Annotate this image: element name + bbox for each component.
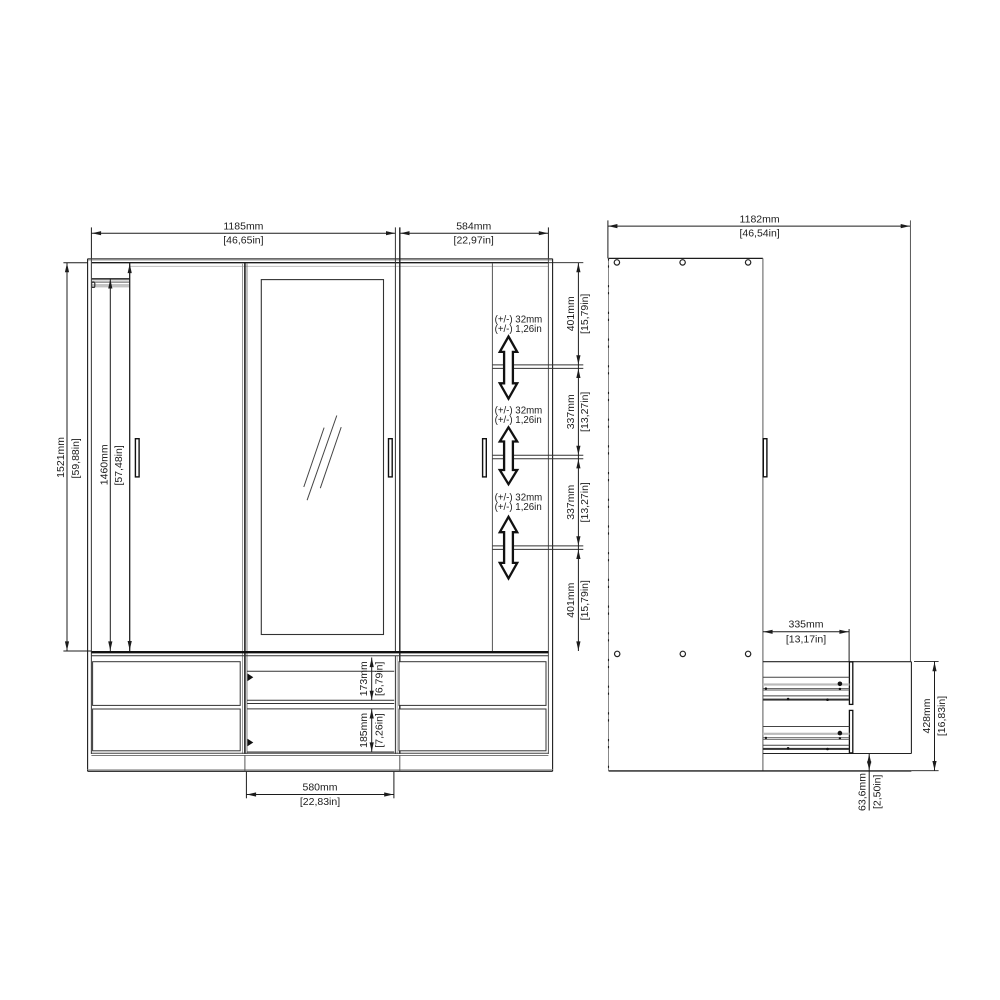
svg-text:[6,79in]: [6,79in] <box>373 662 385 697</box>
svg-text:1521mm: 1521mm <box>55 437 67 478</box>
svg-text:[22,97in]: [22,97in] <box>454 235 494 247</box>
svg-text:(+/-) 1,26in: (+/-) 1,26in <box>495 415 542 426</box>
svg-text:335mm: 335mm <box>788 619 823 631</box>
svg-text:63,6mm: 63,6mm <box>857 773 869 811</box>
svg-text:[59,88in]: [59,88in] <box>70 438 82 478</box>
svg-text:(+/-) 1,26in: (+/-) 1,26in <box>495 324 542 335</box>
svg-text:[22,83in]: [22,83in] <box>300 796 340 808</box>
svg-text:580mm: 580mm <box>302 782 337 794</box>
svg-text:[46,65in]: [46,65in] <box>223 235 263 247</box>
svg-text:1185mm: 1185mm <box>223 221 263 233</box>
svg-text:401mm: 401mm <box>565 582 577 617</box>
svg-text:[13,27in]: [13,27in] <box>579 392 591 432</box>
svg-text:[15,79in]: [15,79in] <box>579 580 591 620</box>
svg-text:173mm: 173mm <box>358 661 370 696</box>
svg-text:401mm: 401mm <box>565 296 577 331</box>
svg-text:1460mm: 1460mm <box>98 444 110 485</box>
svg-text:[7,26in]: [7,26in] <box>373 713 385 748</box>
svg-text:[15,79in]: [15,79in] <box>579 294 591 334</box>
svg-text:[46,54in]: [46,54in] <box>739 228 779 240</box>
svg-text:337mm: 337mm <box>565 485 577 520</box>
svg-text:428mm: 428mm <box>921 698 933 733</box>
svg-text:584mm: 584mm <box>456 221 491 233</box>
svg-text:185mm: 185mm <box>358 713 370 748</box>
svg-text:[13,27in]: [13,27in] <box>579 482 591 522</box>
svg-text:1182mm: 1182mm <box>740 214 780 226</box>
svg-text:(+/-) 1,26in: (+/-) 1,26in <box>495 502 542 513</box>
svg-text:337mm: 337mm <box>565 394 577 429</box>
svg-text:[57,48in]: [57,48in] <box>113 445 125 485</box>
svg-text:[2,50in]: [2,50in] <box>871 775 883 810</box>
svg-text:[13,17in]: [13,17in] <box>786 633 826 645</box>
svg-text:[16,83in]: [16,83in] <box>936 696 948 736</box>
